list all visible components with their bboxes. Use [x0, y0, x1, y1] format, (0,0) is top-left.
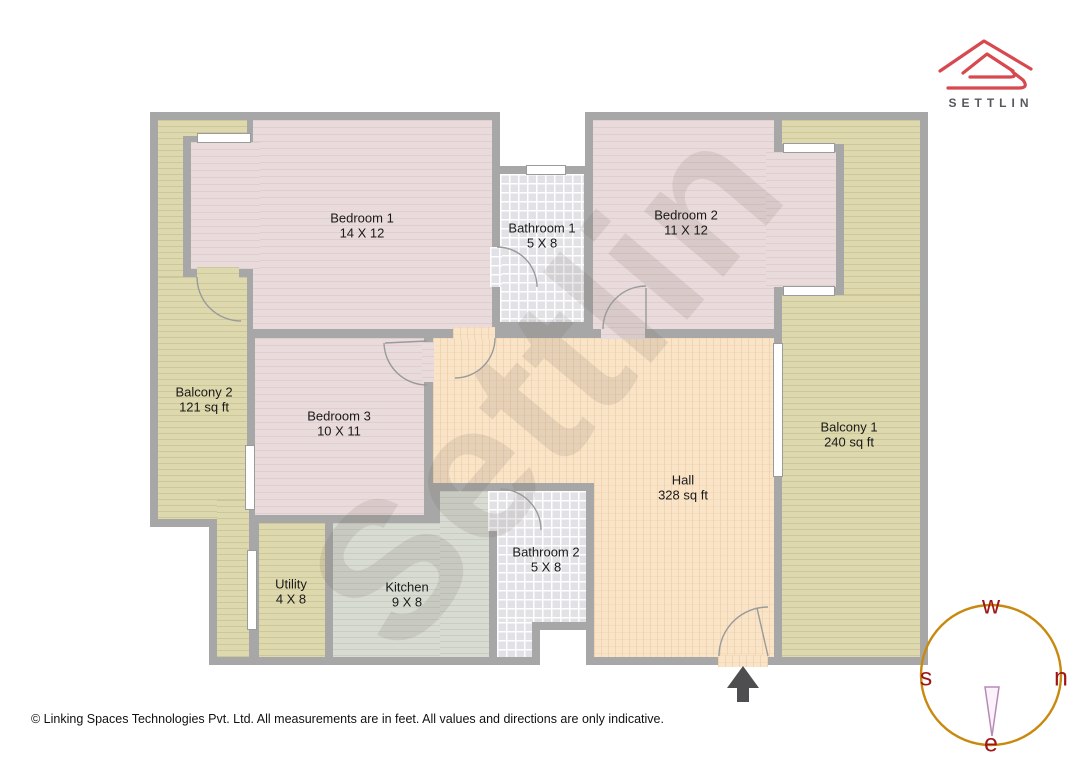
room-dims: 9 X 8 [385, 595, 428, 610]
room-name: Bedroom 3 [307, 410, 371, 425]
room-dims: 10 X 11 [307, 424, 371, 439]
door-arc [500, 489, 541, 530]
room-dims: 5 X 8 [512, 560, 579, 575]
room-label-utility: Utility 4 X 8 [275, 578, 307, 607]
room-label-balcony-1: Balcony 1 240 sq ft [820, 421, 877, 450]
room-name: Utility [275, 578, 307, 593]
settlin-logo-text: SETTLIN [938, 96, 1044, 110]
room-label-bathroom-1: Bathroom 1 5 X 8 [508, 222, 575, 251]
settlin-logo-icon [940, 41, 1031, 88]
door-arc [455, 338, 495, 378]
door-arc [197, 277, 241, 321]
room-dims: 240 sq ft [820, 435, 877, 450]
compass-letter-east: e [984, 730, 998, 759]
entrance-arrow [727, 666, 759, 702]
room-name: Hall [658, 474, 708, 489]
room-label-balcony-2: Balcony 2 121 sq ft [175, 386, 232, 415]
door-arc [497, 247, 537, 287]
room-name: Kitchen [385, 581, 428, 596]
door-arc [719, 607, 768, 656]
room-name: Bedroom 1 [330, 212, 394, 227]
room-dims: 121 sq ft [175, 400, 232, 415]
door-leaf [757, 608, 768, 656]
room-name: Bathroom 2 [512, 546, 579, 561]
room-name: Bathroom 1 [508, 222, 575, 237]
room-label-bedroom-2: Bedroom 2 11 X 12 [654, 209, 718, 238]
room-name: Bedroom 2 [654, 209, 718, 224]
room-label-bedroom-1: Bedroom 1 14 X 12 [330, 212, 394, 241]
compass-letter-south: s [920, 664, 933, 693]
door-arc [603, 286, 646, 329]
compass-letter-west: w [982, 592, 1000, 621]
room-label-bathroom-2: Bathroom 2 5 X 8 [512, 546, 579, 575]
detail-overlay [0, 0, 1080, 764]
door-leaf [385, 341, 427, 343]
room-dims: 11 X 12 [654, 223, 718, 238]
room-name: Balcony 2 [175, 386, 232, 401]
floor-plan: Settlin w s n e SET [0, 0, 1080, 764]
room-label-kitchen: Kitchen 9 X 8 [385, 581, 428, 610]
footer-disclaimer: © Linking Spaces Technologies Pvt. Ltd. … [31, 712, 664, 726]
room-dims: 5 X 8 [508, 236, 575, 251]
room-dims: 328 sq ft [658, 488, 708, 503]
room-dims: 14 X 12 [330, 226, 394, 241]
room-label-hall: Hall 328 sq ft [658, 474, 708, 503]
room-name: Balcony 1 [820, 421, 877, 436]
room-dims: 4 X 8 [275, 592, 307, 607]
compass-letter-north: n [1054, 664, 1068, 693]
door-arc [384, 343, 427, 385]
room-label-bedroom-3: Bedroom 3 10 X 11 [307, 410, 371, 439]
